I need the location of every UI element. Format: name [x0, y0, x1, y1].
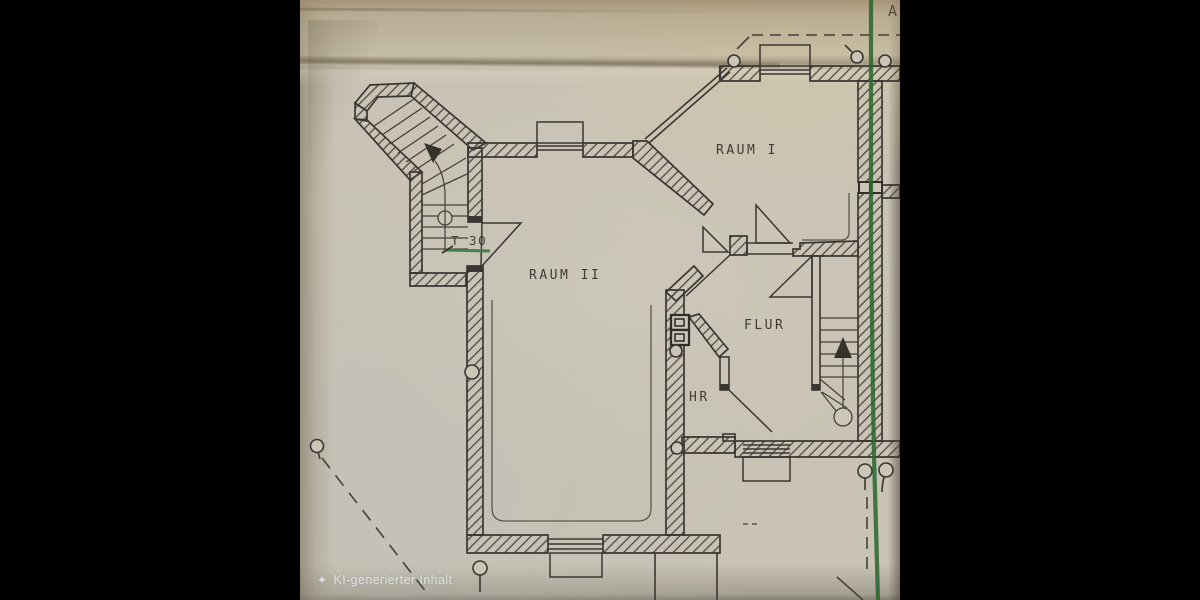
label-flur: FLUR [744, 318, 785, 333]
walls-hatched [355, 66, 900, 553]
letterbox-left [0, 0, 300, 600]
dashed-boundaries [322, 35, 900, 600]
stair-direction-arrow-2 [834, 337, 852, 358]
ai-watermark-text: KI-generierter Inhalt [333, 573, 452, 587]
screenshot: RAUM I RAUM II FLUR HR T 30 A ✦ KI-gener… [0, 0, 1200, 600]
floor-plan-photo: RAUM I RAUM II FLUR HR T 30 A ✦ KI-gener… [300, 0, 900, 600]
label-hr: HR [689, 390, 710, 405]
floor-plan-drawing: RAUM I RAUM II FLUR HR T 30 A [300, 0, 900, 600]
t30-green-underline [445, 250, 490, 251]
letterbox-right [900, 0, 1200, 600]
label-raum-2: RAUM II [529, 268, 601, 283]
stair-direction-arrow [424, 143, 442, 163]
label-raum-1: RAUM I [716, 143, 778, 158]
wall-end-caps [467, 216, 820, 390]
right-staircase [820, 318, 858, 426]
grid-marker-a: A [888, 2, 897, 20]
ai-watermark: ✦ KI-generierter Inhalt [317, 573, 452, 587]
label-door-t30: T 30 [451, 233, 487, 248]
sparkle-icon: ✦ [317, 573, 327, 587]
chimney-block [671, 315, 689, 345]
survey-circle-markers [311, 45, 894, 592]
